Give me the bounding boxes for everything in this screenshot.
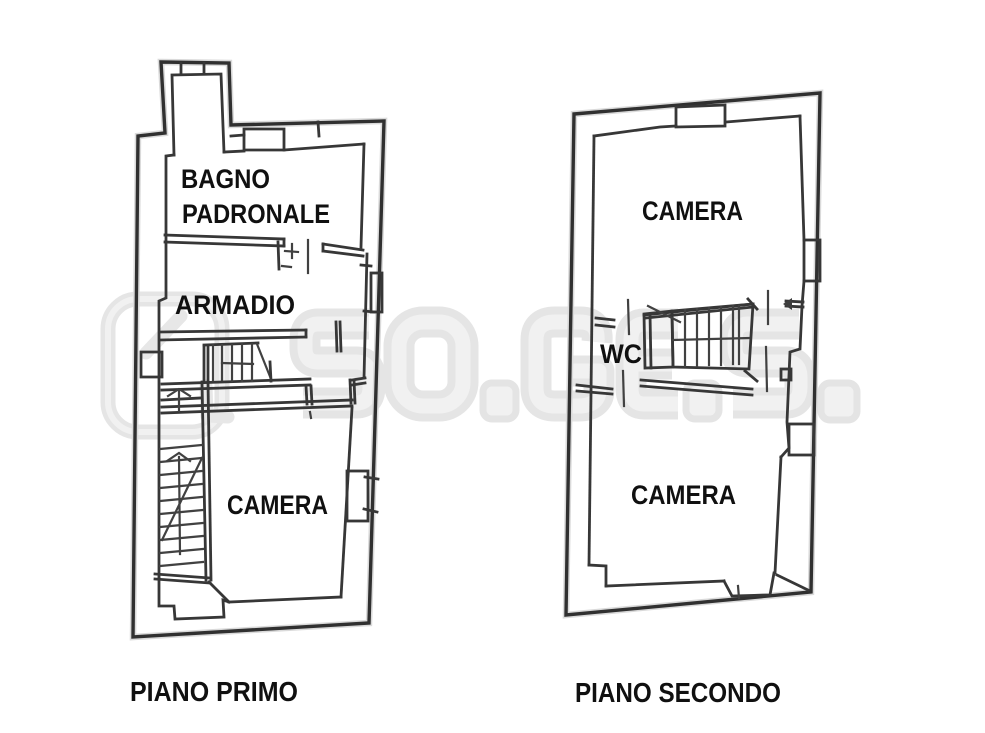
svg-text:PIANO PRIMO: PIANO PRIMO <box>130 676 298 707</box>
svg-text:WC: WC <box>600 339 642 369</box>
svg-text:ARMADIO: ARMADIO <box>175 290 295 320</box>
svg-text:BAGNO: BAGNO <box>181 164 270 194</box>
svg-text:CAMERA: CAMERA <box>631 480 736 510</box>
svg-text:CAMERA: CAMERA <box>227 490 328 520</box>
svg-text:CAMERA: CAMERA <box>642 196 743 226</box>
svg-text:PADRONALE: PADRONALE <box>182 199 330 229</box>
svg-text:PIANO SECONDO: PIANO SECONDO <box>575 677 781 708</box>
